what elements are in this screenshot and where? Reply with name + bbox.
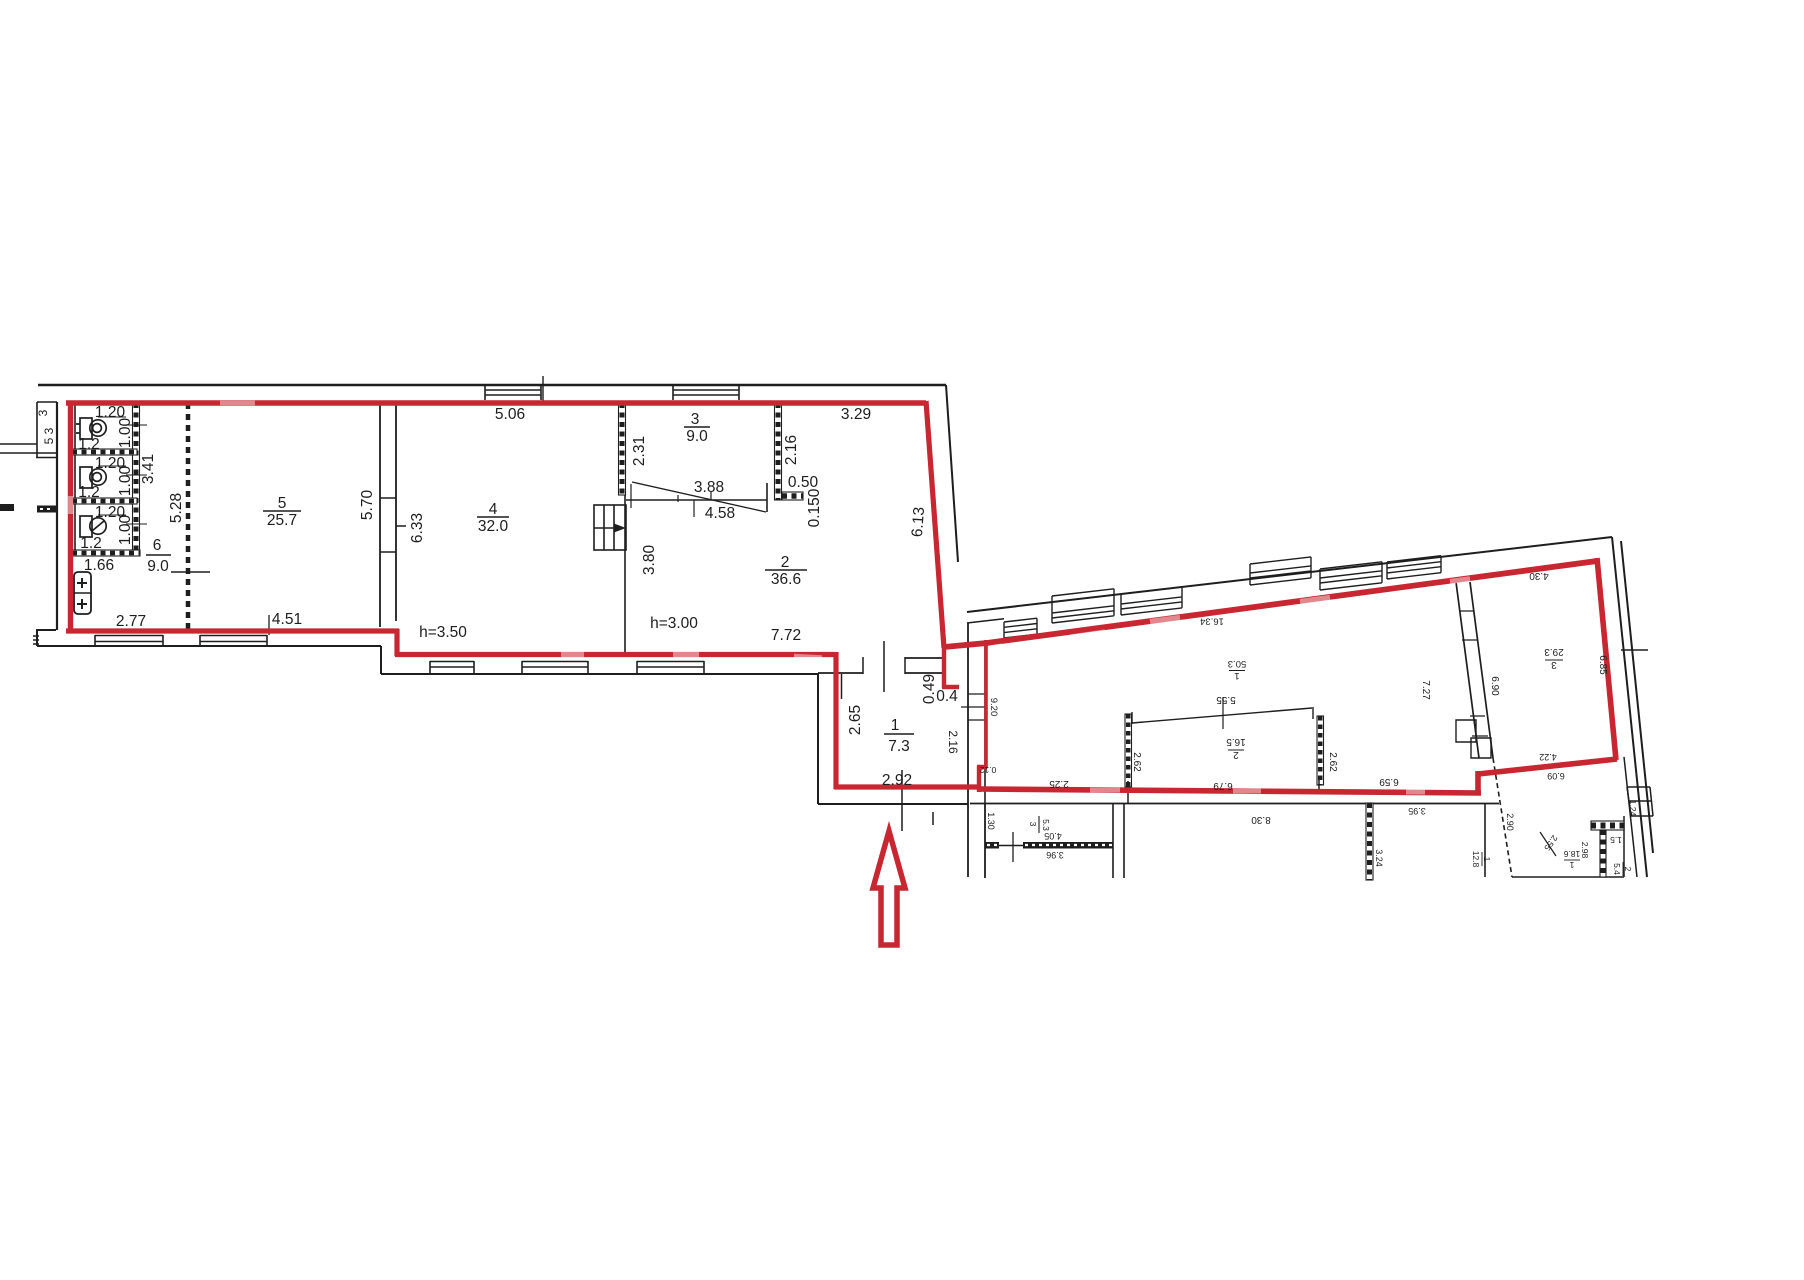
svg-text:3.96: 3.96 <box>1046 850 1064 860</box>
svg-text:7.27: 7.27 <box>1420 680 1431 700</box>
svg-text:5: 5 <box>278 495 287 512</box>
svg-text:3: 3 <box>1028 822 1038 827</box>
svg-text:3: 3 <box>1551 659 1557 670</box>
svg-text:29.3: 29.3 <box>1544 646 1564 657</box>
svg-text:2.62: 2.62 <box>1131 752 1142 772</box>
svg-text:9.0: 9.0 <box>686 428 708 445</box>
svg-text:16.34: 16.34 <box>1200 616 1224 627</box>
svg-text:3.88: 3.88 <box>694 479 724 496</box>
svg-text:5.3: 5.3 <box>1041 819 1051 831</box>
svg-text:2: 2 <box>1233 749 1239 760</box>
svg-text:4.51: 4.51 <box>272 611 302 628</box>
svg-text:3.95: 3.95 <box>1408 806 1426 816</box>
svg-text:2.92: 2.92 <box>882 772 912 789</box>
svg-text:4.30: 4.30 <box>1529 570 1549 581</box>
svg-text:1: 1 <box>1234 670 1239 681</box>
svg-text:4.58: 4.58 <box>705 505 735 522</box>
svg-text:16.5: 16.5 <box>1226 736 1246 747</box>
svg-text:6.79: 6.79 <box>1213 780 1233 791</box>
svg-text:6.85: 6.85 <box>1597 655 1608 675</box>
svg-text:6: 6 <box>153 537 162 554</box>
svg-text:4.22: 4.22 <box>1539 752 1557 762</box>
svg-text:2.31: 2.31 <box>631 436 648 466</box>
svg-text:0.12: 0.12 <box>979 765 996 775</box>
svg-text:1.66: 1.66 <box>84 557 114 574</box>
svg-text:1.00: 1.00 <box>117 466 134 497</box>
svg-text:1.5: 1.5 <box>1610 835 1622 845</box>
svg-text:1.2: 1.2 <box>78 436 100 453</box>
svg-text:h=3.50: h=3.50 <box>419 624 467 641</box>
svg-text:18.6: 18.6 <box>1563 849 1580 859</box>
svg-text:1: 1 <box>1482 857 1492 862</box>
svg-text:0.50: 0.50 <box>788 474 819 491</box>
svg-text:5.28: 5.28 <box>168 493 185 523</box>
svg-text:4: 4 <box>489 501 498 518</box>
svg-text:2.16: 2.16 <box>946 730 960 754</box>
svg-text:8.30: 8.30 <box>1251 814 1271 825</box>
svg-text:3: 3 <box>691 411 700 428</box>
svg-text:5.55: 5.55 <box>1216 694 1236 705</box>
svg-text:2.65: 2.65 <box>847 705 864 735</box>
svg-text:6.59: 6.59 <box>1379 776 1399 787</box>
svg-text:7.3: 7.3 <box>888 738 910 755</box>
svg-text:25.7: 25.7 <box>267 512 297 529</box>
svg-text:0.4: 0.4 <box>936 688 958 705</box>
svg-text:3.41: 3.41 <box>140 454 157 484</box>
svg-text:9.20: 9.20 <box>988 698 999 717</box>
svg-text:6.33: 6.33 <box>409 513 426 543</box>
svg-text:6.09: 6.09 <box>1547 771 1565 781</box>
svg-text:50.3: 50.3 <box>1228 658 1247 669</box>
svg-text:3: 3 <box>42 427 56 434</box>
svg-text:1: 1 <box>1569 860 1574 870</box>
svg-text:0.150: 0.150 <box>806 488 823 527</box>
svg-text:1: 1 <box>891 717 900 734</box>
svg-text:2.62: 2.62 <box>1327 752 1338 772</box>
svg-text:2: 2 <box>781 554 790 571</box>
svg-text:1.30: 1.30 <box>986 812 996 830</box>
svg-text:5.4: 5.4 <box>1612 863 1622 875</box>
svg-text:3: 3 <box>36 409 50 416</box>
svg-text:4.05: 4.05 <box>1044 831 1062 841</box>
svg-text:6.90: 6.90 <box>1489 676 1500 696</box>
svg-text:32.0: 32.0 <box>478 518 509 535</box>
svg-text:1.2: 1.2 <box>78 484 100 501</box>
svg-text:3.80: 3.80 <box>641 545 658 576</box>
svg-text:12.8: 12.8 <box>1471 851 1481 868</box>
svg-text:2.98: 2.98 <box>1580 842 1590 859</box>
svg-text:3.29: 3.29 <box>841 406 871 423</box>
svg-text:1.00: 1.00 <box>117 515 134 546</box>
svg-text:36.6: 36.6 <box>771 571 801 588</box>
svg-text:1.00: 1.00 <box>117 418 134 449</box>
svg-text:7.72: 7.72 <box>771 627 801 644</box>
svg-text:1.2: 1.2 <box>80 535 102 552</box>
svg-text:5.06: 5.06 <box>495 406 525 423</box>
svg-text:9.0: 9.0 <box>147 558 169 575</box>
svg-text:1.24: 1.24 <box>1628 800 1638 817</box>
svg-text:2.90: 2.90 <box>1505 813 1515 831</box>
svg-text:2.77: 2.77 <box>116 613 146 630</box>
svg-text:2: 2 <box>1623 867 1633 872</box>
svg-text:h=3.00: h=3.00 <box>650 615 698 632</box>
svg-text:5.70: 5.70 <box>359 490 376 521</box>
svg-text:3.24: 3.24 <box>1374 849 1384 867</box>
svg-text:6.13: 6.13 <box>909 506 928 537</box>
svg-text:2.16: 2.16 <box>783 435 800 465</box>
svg-text:2.25: 2.25 <box>1049 778 1069 789</box>
svg-text:5: 5 <box>42 437 56 444</box>
